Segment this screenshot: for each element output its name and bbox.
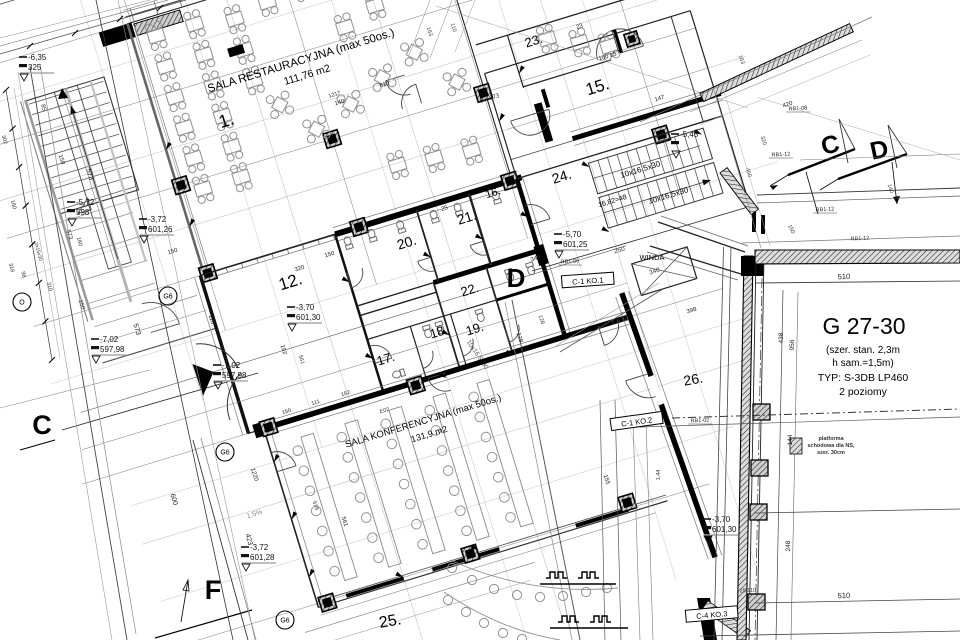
svg-text:248: 248 (785, 540, 792, 551)
svg-text:2 poziomy: 2 poziomy (839, 386, 888, 398)
svg-text:RB1-12: RB1-12 (815, 207, 834, 214)
svg-text:D: D (507, 263, 526, 293)
svg-text:RB1-06: RB1-06 (560, 259, 579, 266)
svg-text:F: F (205, 575, 222, 605)
svg-text:WINDA: WINDA (640, 253, 665, 262)
svg-text:601,25: 601,25 (563, 240, 588, 249)
svg-text:438: 438 (778, 332, 785, 343)
svg-text:h sam.=1,5m): h sam.=1,5m) (832, 358, 893, 369)
svg-text:144: 144 (787, 434, 794, 445)
svg-text:platforma: platforma (818, 436, 844, 442)
svg-text:RB1-12: RB1-12 (771, 152, 790, 159)
svg-text:601,30: 601,30 (296, 313, 321, 322)
svg-text:C: C (32, 410, 52, 440)
svg-text:-6,35: -6,35 (28, 53, 47, 62)
svg-text:-3,70: -3,70 (712, 515, 731, 524)
svg-text:-7,02: -7,02 (100, 335, 119, 344)
svg-text:1,44: 1,44 (656, 470, 662, 481)
svg-text:598: 598 (76, 208, 90, 217)
svg-text:G6: G6 (220, 450, 229, 457)
svg-text:601,28: 601,28 (250, 553, 275, 562)
svg-text:597,98: 597,98 (100, 345, 125, 354)
svg-text:G6: G6 (280, 618, 289, 625)
svg-text:510: 510 (838, 272, 851, 281)
svg-text:G 27-30: G 27-30 (822, 313, 905, 339)
svg-text:TYP: S-3DB LP460: TYP: S-3DB LP460 (818, 372, 909, 384)
svg-text:-3,70: -3,70 (296, 303, 315, 312)
svg-text:schodowa dla NS,: schodowa dla NS, (807, 443, 855, 449)
svg-text:RB1-12: RB1-12 (850, 236, 869, 243)
svg-text:-3,72: -3,72 (250, 543, 269, 552)
svg-text:25 110: 25 110 (740, 588, 757, 595)
svg-text:325: 325 (28, 63, 42, 72)
svg-text:597,98: 597,98 (222, 371, 247, 380)
svg-text:-3,72: -3,72 (148, 215, 167, 224)
svg-text:-5,72: -5,72 (76, 198, 95, 207)
svg-text:(szer. stan. 2,3m: (szer. stan. 2,3m (826, 345, 900, 356)
svg-text:-7,02: -7,02 (222, 361, 241, 370)
svg-text:G6: G6 (163, 294, 172, 301)
svg-text:956: 956 (789, 339, 796, 350)
svg-text:601,26: 601,26 (148, 225, 173, 234)
svg-text:510: 510 (838, 591, 851, 600)
svg-text:szer. 30cm: szer. 30cm (817, 450, 845, 456)
svg-text:-5,45: -5,45 (680, 130, 699, 139)
svg-text:RB1-02: RB1-02 (690, 418, 709, 425)
svg-text:O: O (19, 300, 25, 307)
svg-text:-5,70: -5,70 (563, 230, 582, 239)
svg-text:26.: 26. (682, 370, 704, 389)
